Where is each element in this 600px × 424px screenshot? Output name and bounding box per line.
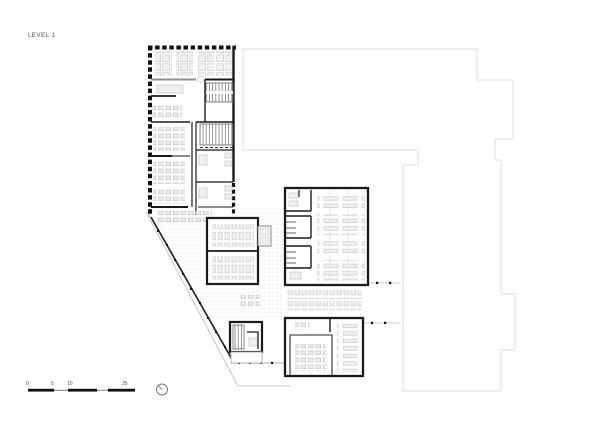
floor-plan-canvas: LEVEL 1 0 5 10 25 — [0, 0, 600, 424]
drawing-sheet: LEVEL 1 0 5 10 25 — [0, 0, 600, 424]
scale-label-0: 0 — [26, 381, 29, 387]
seminar-seating — [295, 344, 326, 372]
seminar-tables — [337, 324, 360, 372]
meeting-table — [157, 85, 183, 93]
exterior-stair-block — [230, 322, 262, 363]
atrium-seating — [158, 211, 212, 223]
small-desk-cluster — [152, 105, 182, 119]
drawing-title: LEVEL 1 — [28, 33, 56, 39]
scale-label-10: 10 — [67, 381, 73, 387]
wing-room-desks — [153, 127, 185, 204]
scale-label-5: 5 — [51, 381, 54, 387]
scale-label-25: 25 — [122, 381, 128, 387]
seminar-block — [285, 318, 363, 376]
atrium-tables — [240, 295, 260, 308]
study-hall-block — [285, 188, 368, 285]
